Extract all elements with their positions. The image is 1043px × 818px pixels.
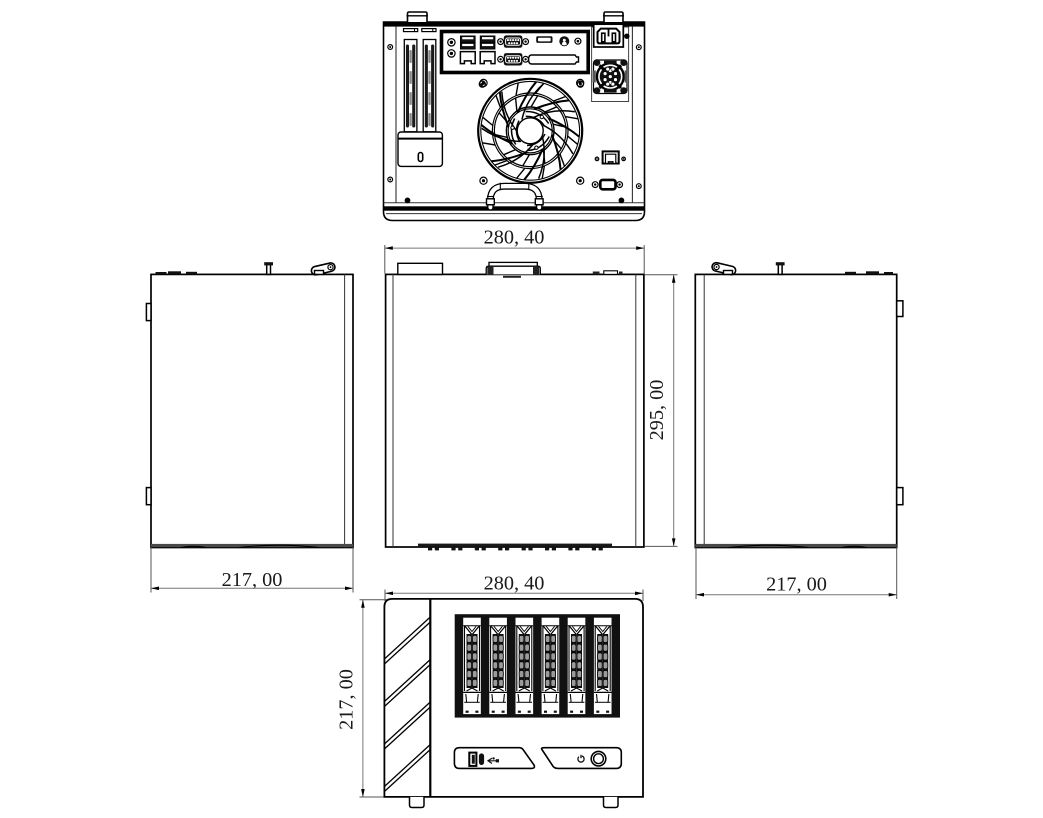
svg-text:295, 00: 295, 00 bbox=[646, 380, 668, 441]
svg-text:217, 00: 217, 00 bbox=[222, 569, 283, 591]
svg-text:280, 40: 280, 40 bbox=[484, 226, 545, 248]
svg-text:217, 00: 217, 00 bbox=[336, 669, 358, 730]
svg-text:217, 00: 217, 00 bbox=[766, 574, 827, 596]
svg-text:280, 40: 280, 40 bbox=[484, 572, 545, 594]
